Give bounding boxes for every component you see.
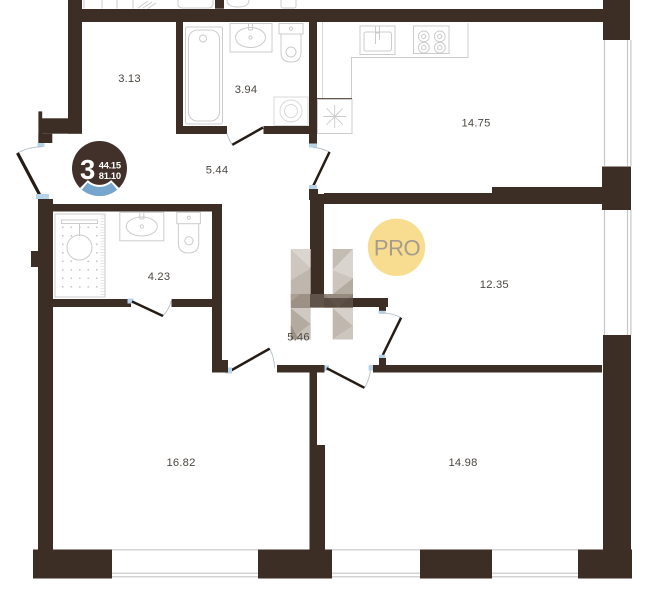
svg-text:81.10: 81.10 [99,170,121,181]
svg-text:14.98: 14.98 [449,457,478,469]
svg-text:PRO: PRO [374,236,421,261]
svg-text:3: 3 [80,154,95,185]
svg-text:3.94: 3.94 [235,84,258,96]
svg-text:5.44: 5.44 [206,164,229,176]
svg-text:4.23: 4.23 [148,271,171,283]
svg-text:5.46: 5.46 [287,332,310,344]
svg-text:14.75: 14.75 [462,118,491,130]
svg-text:12.35: 12.35 [480,279,509,291]
svg-text:3.13: 3.13 [118,73,141,85]
svg-text:44.15: 44.15 [99,159,121,170]
svg-text:16.82: 16.82 [167,457,196,469]
